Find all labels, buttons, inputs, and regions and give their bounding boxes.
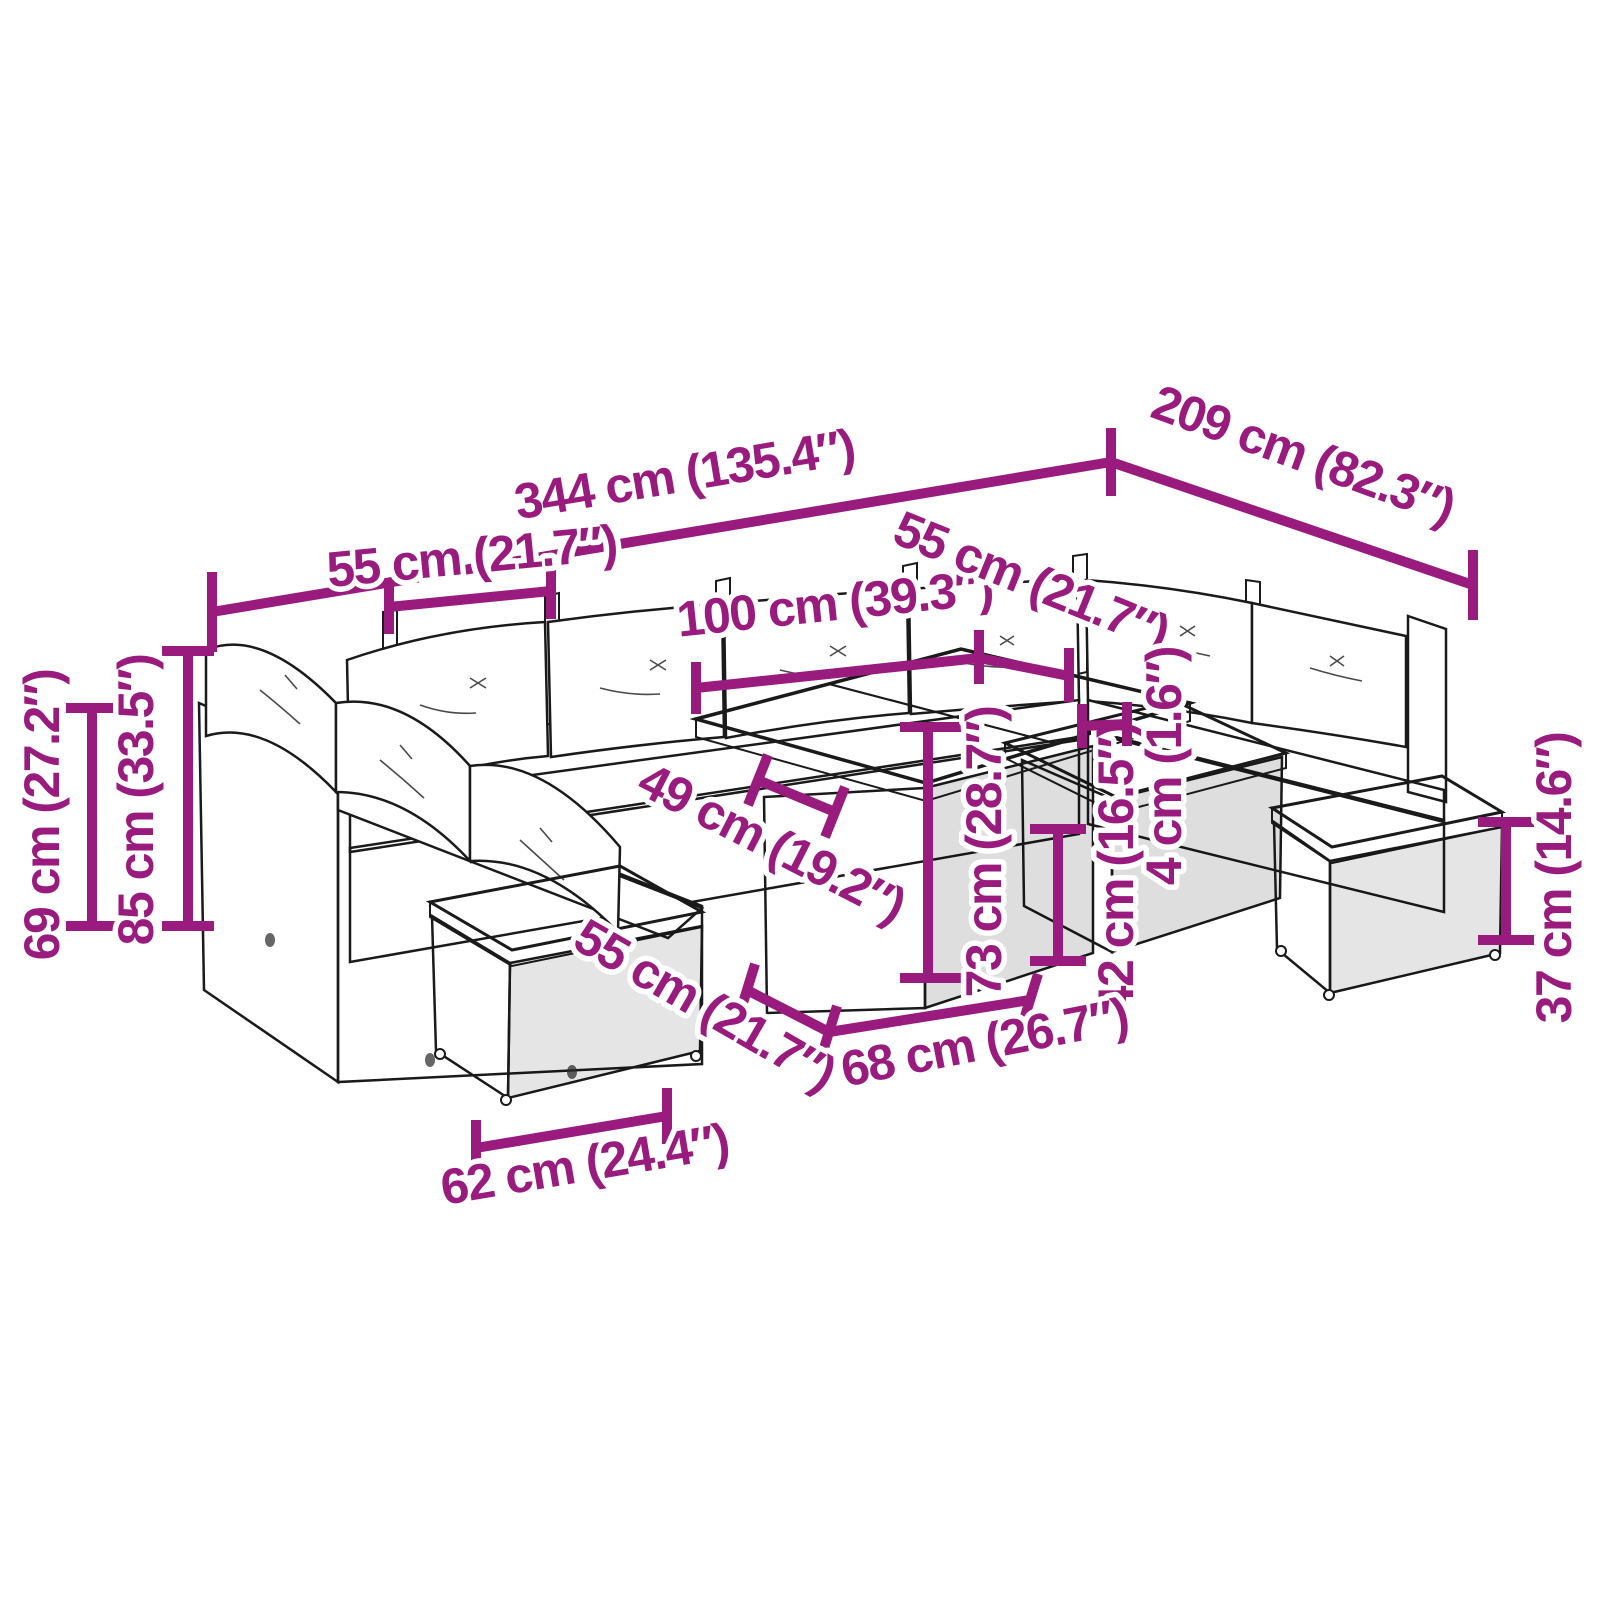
dimension-back-height: 69 cm (27.2″) bbox=[14, 670, 118, 961]
dimension-total-depth: 209 cm (82.3″) bbox=[1111, 374, 1473, 620]
dimension-label-top-thickness: 4 cm (1.6″) bbox=[1136, 647, 1192, 885]
footstool-right bbox=[1272, 776, 1502, 1000]
back-cushion bbox=[206, 645, 336, 792]
dimension-total-height: 85 cm (33.5″) bbox=[108, 651, 214, 945]
dimension-back-seat-width: 55 cm (21.7″) bbox=[324, 514, 619, 634]
dimension-label-back-seat-width: 55 cm (21.7″) bbox=[324, 514, 619, 598]
dimension-label-table-height: 73 cm (28.7″) bbox=[956, 707, 1012, 998]
diagram-canvas: 344 cm (135.4″) 209 cm (82.3″) 55 cm (21… bbox=[0, 0, 1600, 1600]
rattan-end-post bbox=[1408, 616, 1446, 802]
shading bbox=[1330, 827, 1502, 993]
dimension-label-total-height: 85 cm (33.5″) bbox=[108, 655, 164, 946]
furniture-dimension-diagram: 344 cm (135.4″) 209 cm (82.3″) 55 cm (21… bbox=[0, 0, 1600, 1600]
dimension-label-stool-height: 37 cm (14.6″) bbox=[1526, 733, 1582, 1024]
dimension-label-back-height: 69 cm (27.2″) bbox=[14, 670, 70, 961]
back-cushion bbox=[1252, 603, 1406, 747]
dimension-label-total-depth: 209 cm (82.3″) bbox=[1145, 374, 1462, 535]
stool-body-left bbox=[1274, 822, 1330, 993]
dimension-stool-width: 62 cm (24.4″) bbox=[436, 1088, 732, 1216]
